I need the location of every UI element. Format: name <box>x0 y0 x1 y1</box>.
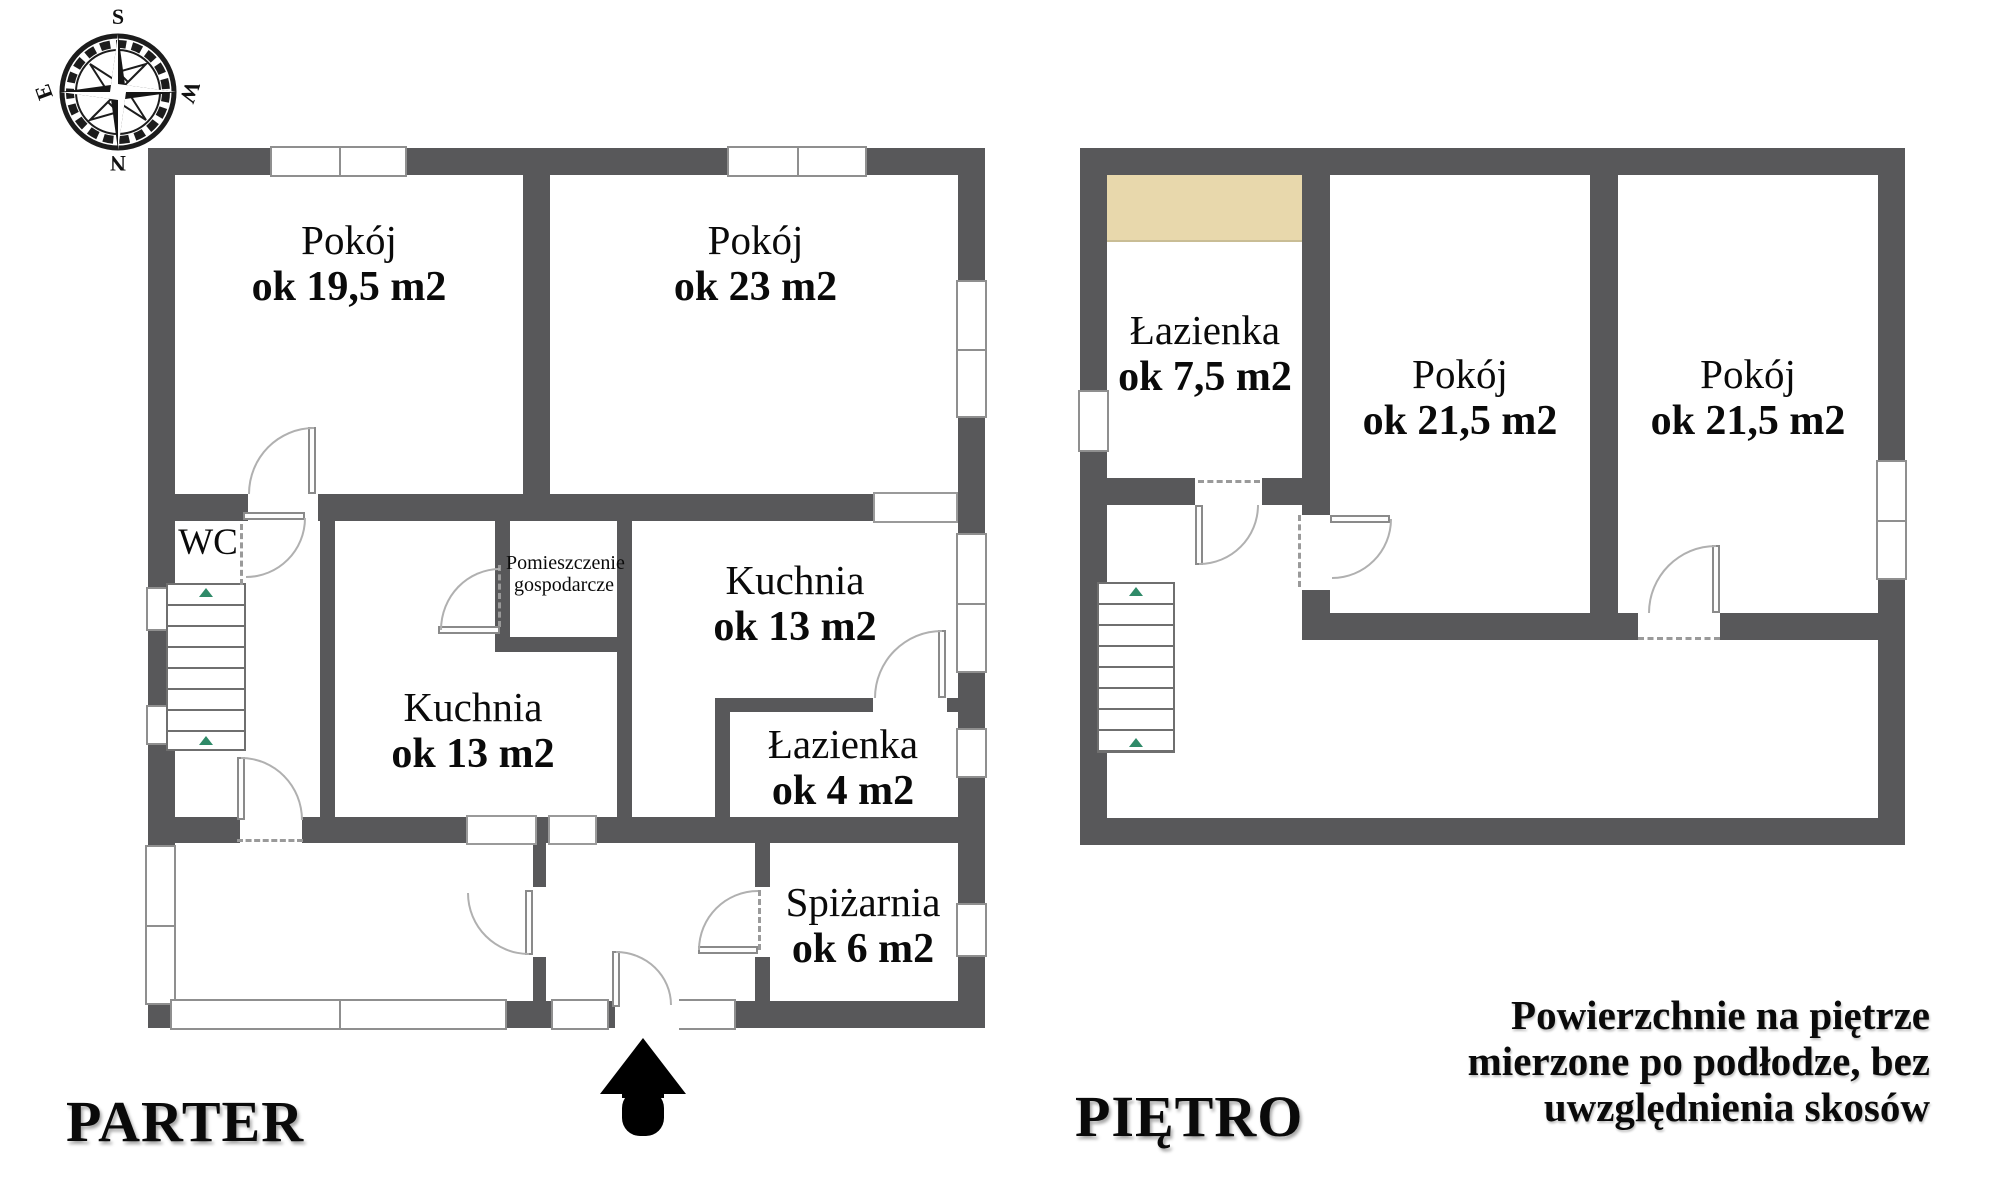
door-swing-arc <box>241 757 303 820</box>
wall <box>320 521 335 817</box>
wall <box>947 698 958 712</box>
pietro-title: PIĘTRO <box>1075 1083 1303 1150</box>
wall <box>533 957 546 1001</box>
wall <box>175 494 248 521</box>
window <box>551 999 609 1030</box>
wall <box>1107 478 1195 505</box>
window <box>270 146 407 177</box>
wall <box>1302 613 1638 640</box>
room-label-spizarnia: Spiżarnia ok 6 m2 <box>768 880 958 973</box>
stair-direction-icon <box>1129 587 1143 596</box>
window <box>956 280 987 418</box>
compass-south-label: S <box>112 4 124 29</box>
window <box>1876 460 1907 580</box>
floor-plan-canvas: S W N E <box>0 0 2000 1200</box>
door-opening-dashed <box>758 890 761 950</box>
room-label-pokoj-23: Pokój ok 23 m2 <box>553 218 958 311</box>
window <box>727 146 867 177</box>
window <box>145 845 176 1005</box>
stair-direction-icon <box>199 588 213 597</box>
room-label-pokoj-19: Pokój ok 19,5 m2 <box>175 218 523 311</box>
entrance-arrow-icon <box>598 1038 688 1138</box>
measurement-note: Powierzchnie na piętrze mierzone po podł… <box>1330 993 1930 1131</box>
compass-north-label: N <box>110 151 126 174</box>
room-label-pokoj-215-right: Pokój ok 21,5 m2 <box>1618 352 1878 445</box>
door-swing-arc <box>1332 519 1392 579</box>
entry-door-opening <box>615 1001 681 1028</box>
wall <box>148 817 240 843</box>
door-swing-arc <box>1199 505 1259 565</box>
room-label-pomieszczenie: Pomieszczenie gospodarcze <box>506 552 622 596</box>
wall <box>523 175 550 495</box>
door-swing-arc <box>698 890 758 950</box>
door-opening-dashed <box>237 839 303 842</box>
door-swing-arc <box>248 427 314 494</box>
door-swing-arc <box>467 893 529 955</box>
door-opening-dashed <box>1298 515 1301 587</box>
window <box>956 728 987 778</box>
window <box>956 533 987 673</box>
wall <box>1080 818 1905 845</box>
wall <box>715 698 873 712</box>
wall <box>1590 175 1618 613</box>
compass-west-label: W <box>175 78 200 107</box>
door-opening-dashed <box>240 524 243 585</box>
wall <box>495 637 632 652</box>
wall <box>715 712 730 817</box>
wall <box>302 817 468 843</box>
staircase <box>166 583 246 751</box>
room-label-kuchnia-right: Kuchnia ok 13 m2 <box>640 558 950 651</box>
door-opening-dashed <box>1198 480 1260 483</box>
entry-door-swing-arc <box>616 951 672 1005</box>
wall-opening <box>873 492 958 523</box>
stair-direction-icon <box>199 736 213 745</box>
room-label-lazienka-75: Łazienka ok 7,5 m2 <box>1100 308 1310 401</box>
wall-opening <box>548 815 597 845</box>
room-label-wc: WC <box>176 522 240 563</box>
attic-slope-area <box>1107 175 1302 242</box>
door-swing-arc <box>1648 545 1716 613</box>
wall-opening <box>466 815 537 845</box>
stair-direction-icon <box>1129 738 1143 747</box>
staircase <box>1097 582 1175 753</box>
wall <box>1080 148 1905 175</box>
parter-title: PARTER <box>66 1088 304 1155</box>
wall <box>533 843 546 887</box>
wall <box>318 494 873 521</box>
wall <box>1720 613 1878 640</box>
window <box>679 999 736 1030</box>
room-label-lazienka-4: Łazienka ok 4 m2 <box>730 722 956 815</box>
door-swing-arc <box>440 568 500 630</box>
wall <box>595 817 958 843</box>
door-swing-arc <box>246 518 306 578</box>
window <box>956 903 987 957</box>
room-label-pokoj-215-left: Pokój ok 21,5 m2 <box>1330 352 1590 445</box>
room-label-kuchnia-left: Kuchnia ok 13 m2 <box>337 685 609 778</box>
window <box>170 999 507 1030</box>
door-threshold <box>1638 613 1720 640</box>
compass-east-label: E <box>30 81 58 103</box>
